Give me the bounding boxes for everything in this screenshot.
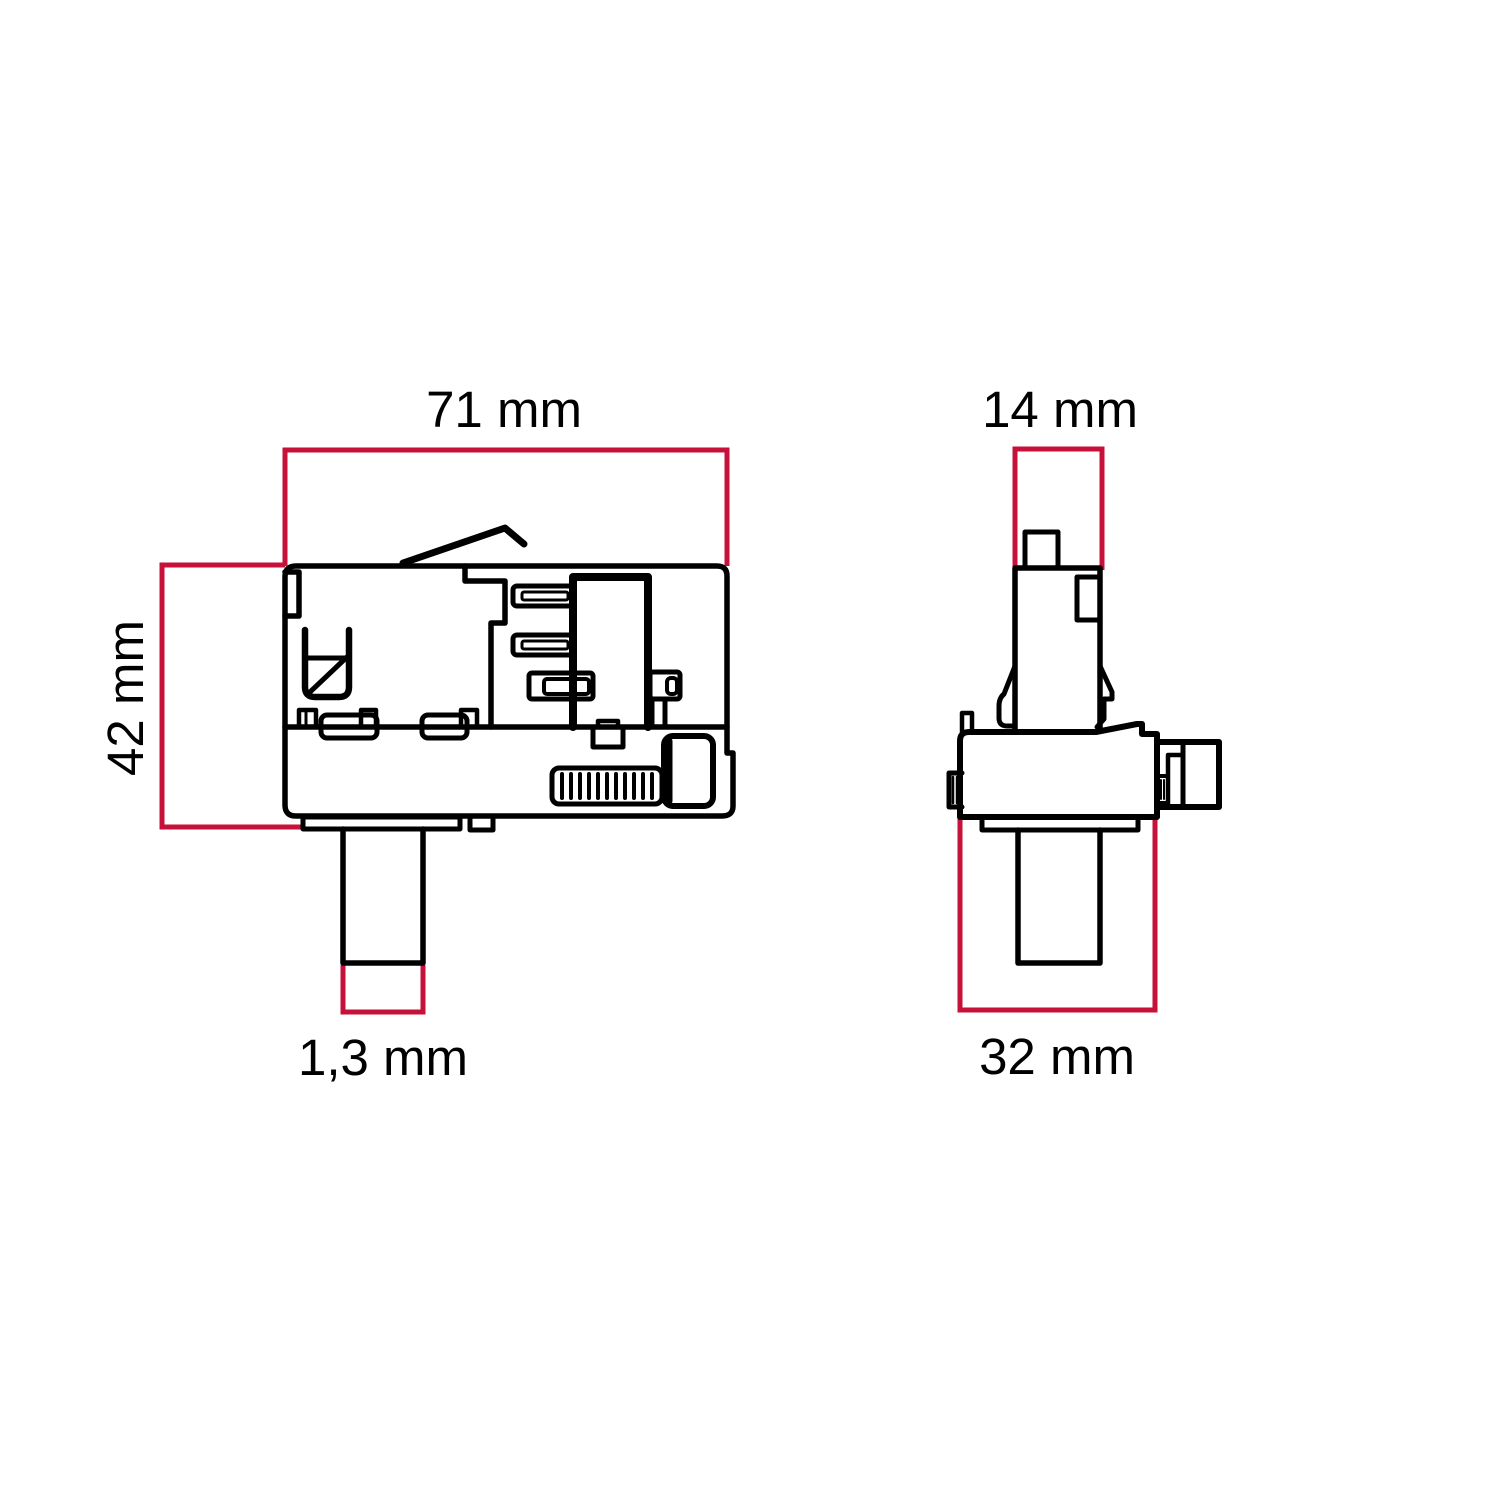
side-view (162, 450, 733, 1012)
dim-bracket-71mm (285, 450, 727, 566)
body-outline (960, 724, 1157, 817)
mounting-stem (343, 829, 423, 963)
release-lever (403, 528, 524, 563)
base-plate (303, 817, 460, 829)
dim-bracket-1-3mm (343, 965, 423, 1012)
front-mounting-stem (1018, 830, 1100, 963)
dim-bracket-42mm (162, 565, 302, 827)
stem-notch (1077, 577, 1100, 620)
base-tab (470, 816, 493, 830)
dimension-drawing: 71 mm 42 mm 1,3 mm 14 mm 32 mm (0, 0, 1500, 1500)
label-32mm: 32 mm (979, 1028, 1135, 1085)
label-14mm: 14 mm (982, 381, 1138, 438)
dim-bracket-32mm (960, 818, 1155, 1010)
label-42mm: 42 mm (97, 620, 154, 776)
front-base-plate (982, 817, 1138, 830)
top-tab (1025, 532, 1058, 568)
upper-stem (1015, 568, 1100, 732)
side-drawing (285, 528, 733, 963)
side-tab-left-stripes (953, 777, 957, 803)
front-view (949, 449, 1219, 1010)
label-71mm: 71 mm (426, 381, 582, 438)
front-drawing (949, 532, 1219, 963)
diagram-canvas: 71 mm 42 mm 1,3 mm 14 mm 32 mm (0, 0, 1500, 1500)
label-1-3mm: 1,3 mm (298, 1029, 468, 1086)
